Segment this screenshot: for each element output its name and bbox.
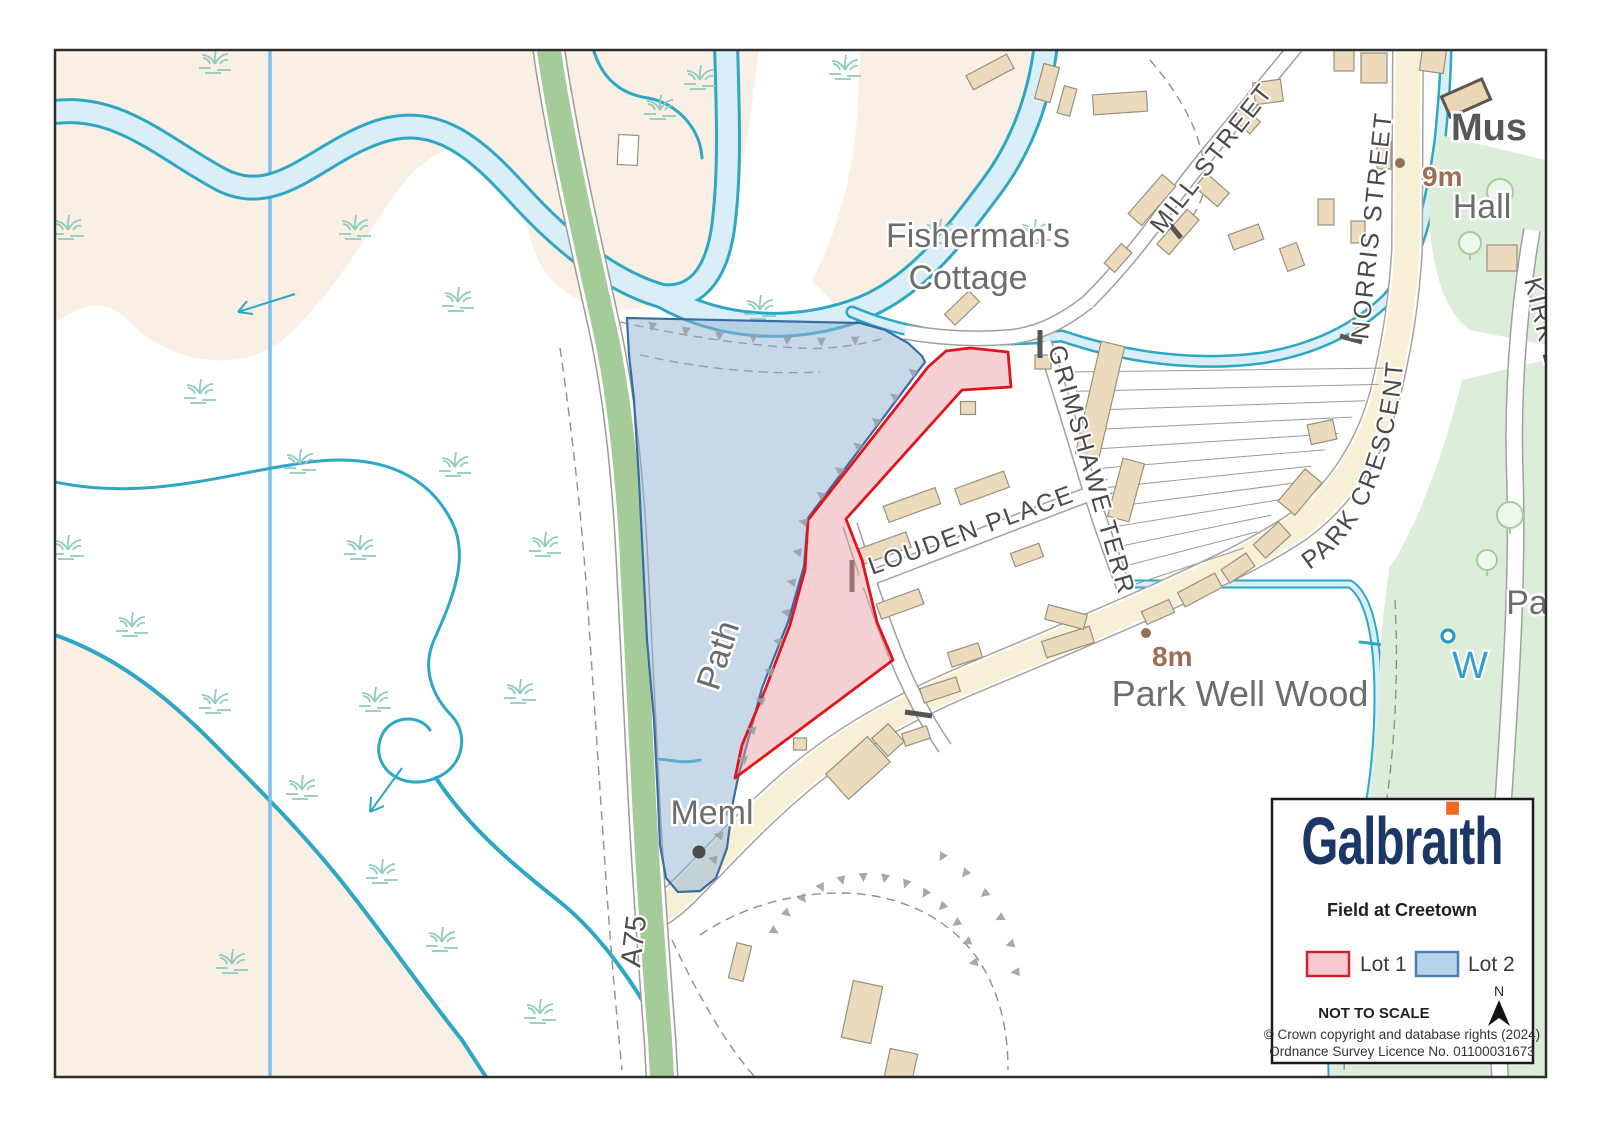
label-w: W: [1452, 645, 1488, 687]
legend-lot1-swatch: [1307, 952, 1349, 976]
building: [794, 738, 807, 750]
building: [1334, 49, 1354, 71]
legend-lot1-label: Lot 1: [1360, 953, 1407, 976]
legend-copyright-2: Ordnance Survey Licence No. 01100031673: [1269, 1044, 1534, 1059]
label-hall: Hall: [1453, 188, 1512, 226]
legend-panel: Galbraıth Field at Creetown Lot 1 Lot 2 …: [1264, 799, 1540, 1063]
building: [1361, 53, 1387, 83]
legend-lot2-label: Lot 2: [1468, 953, 1515, 976]
map-page: Fisherman's Cottage Mus Hall 9m 8m Park …: [0, 0, 1600, 1131]
brand-logo-text: Galbraıth: [1301, 804, 1502, 879]
label-meml: Meml: [670, 794, 753, 832]
building: [961, 402, 976, 415]
legend-copyright-1: © Crown copyright and database rights (2…: [1264, 1027, 1540, 1042]
label-park-well-wood: Park Well Wood: [1112, 673, 1369, 714]
spot-height-8m-dot: [1141, 628, 1151, 638]
tree-symbol: [1497, 502, 1523, 528]
label-mus: Mus: [1451, 107, 1527, 149]
label-fishermans-cottage-line2: Cottage: [908, 259, 1027, 297]
north-label: N: [1494, 983, 1504, 999]
building: [1487, 245, 1517, 271]
legend-lot2-swatch: [1416, 952, 1458, 976]
brand-logo: Galbraıth: [1301, 802, 1502, 879]
tree-symbol: [1477, 550, 1497, 570]
map-canvas: Fisherman's Cottage Mus Hall 9m 8m Park …: [0, 0, 1600, 1131]
building: [1318, 199, 1334, 225]
label-pa: Pa: [1506, 584, 1548, 622]
legend-scale-note: NOT TO SCALE: [1318, 1005, 1429, 1022]
label-a75: A75: [615, 914, 653, 969]
building: [617, 134, 639, 165]
memorial-dot: [693, 846, 706, 859]
well-symbol: [1442, 630, 1454, 642]
label-spot-8m: 8m: [1152, 641, 1192, 672]
spot-height-9m-dot: [1395, 158, 1405, 168]
label-spot-9m: 9m: [1422, 161, 1462, 192]
tree-symbol: [1459, 232, 1481, 254]
legend-title: Field at Creetown: [1327, 900, 1477, 920]
brand-logo-orange-dot: [1446, 802, 1459, 815]
label-fishermans-cottage-line1: Fisherman's: [886, 217, 1070, 255]
building: [1092, 91, 1147, 115]
